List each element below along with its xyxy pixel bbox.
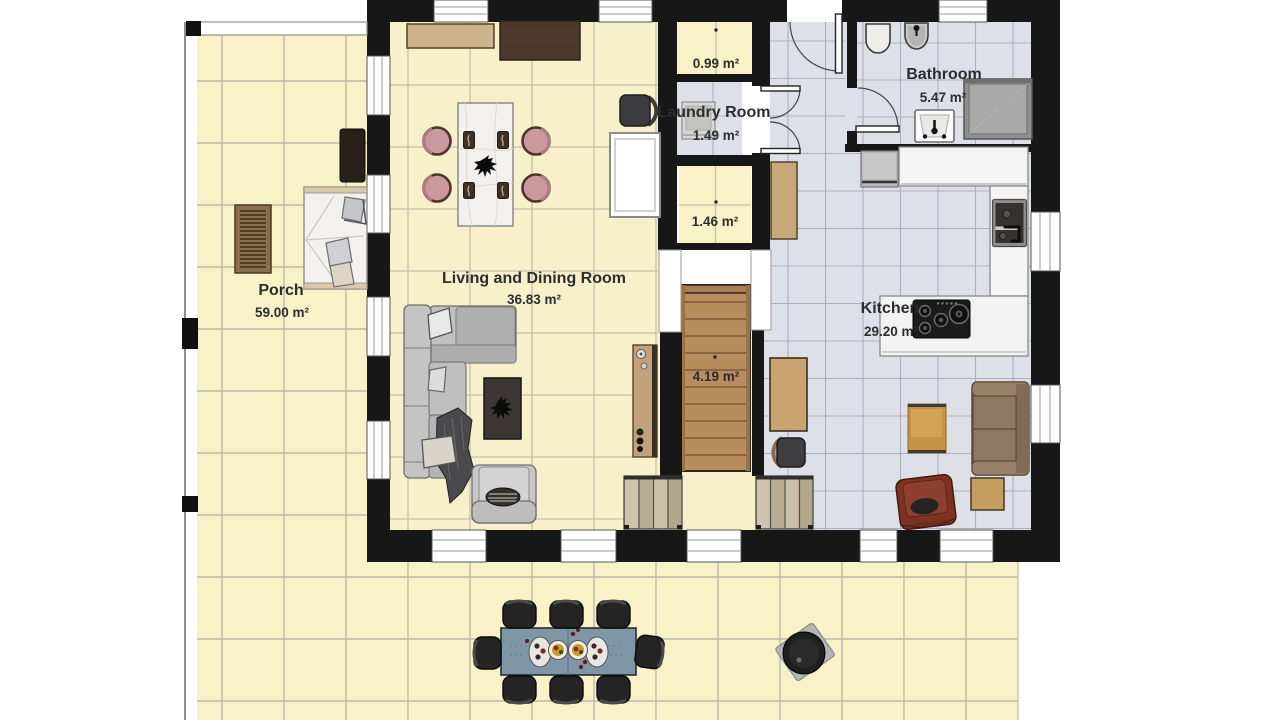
svg-text:36.83 m²: 36.83 m² bbox=[507, 292, 562, 307]
svg-text:Laundry Room: Laundry Room bbox=[658, 104, 771, 121]
svg-text:Kitchen: Kitchen bbox=[861, 300, 920, 317]
svg-text:Living and Dining Room: Living and Dining Room bbox=[442, 270, 626, 287]
svg-text:59.00 m²: 59.00 m² bbox=[255, 305, 310, 320]
svg-text:Porch: Porch bbox=[258, 282, 303, 299]
svg-text:1.49 m²: 1.49 m² bbox=[693, 128, 740, 143]
svg-text:4.19 m²: 4.19 m² bbox=[693, 369, 740, 384]
svg-text:1.46 m²: 1.46 m² bbox=[692, 214, 739, 229]
svg-text:29.20 m²: 29.20 m² bbox=[864, 324, 919, 339]
svg-text:Bathroom: Bathroom bbox=[906, 66, 982, 83]
svg-text:5.47 m²: 5.47 m² bbox=[920, 90, 967, 105]
svg-text:0.99 m²: 0.99 m² bbox=[693, 56, 740, 71]
